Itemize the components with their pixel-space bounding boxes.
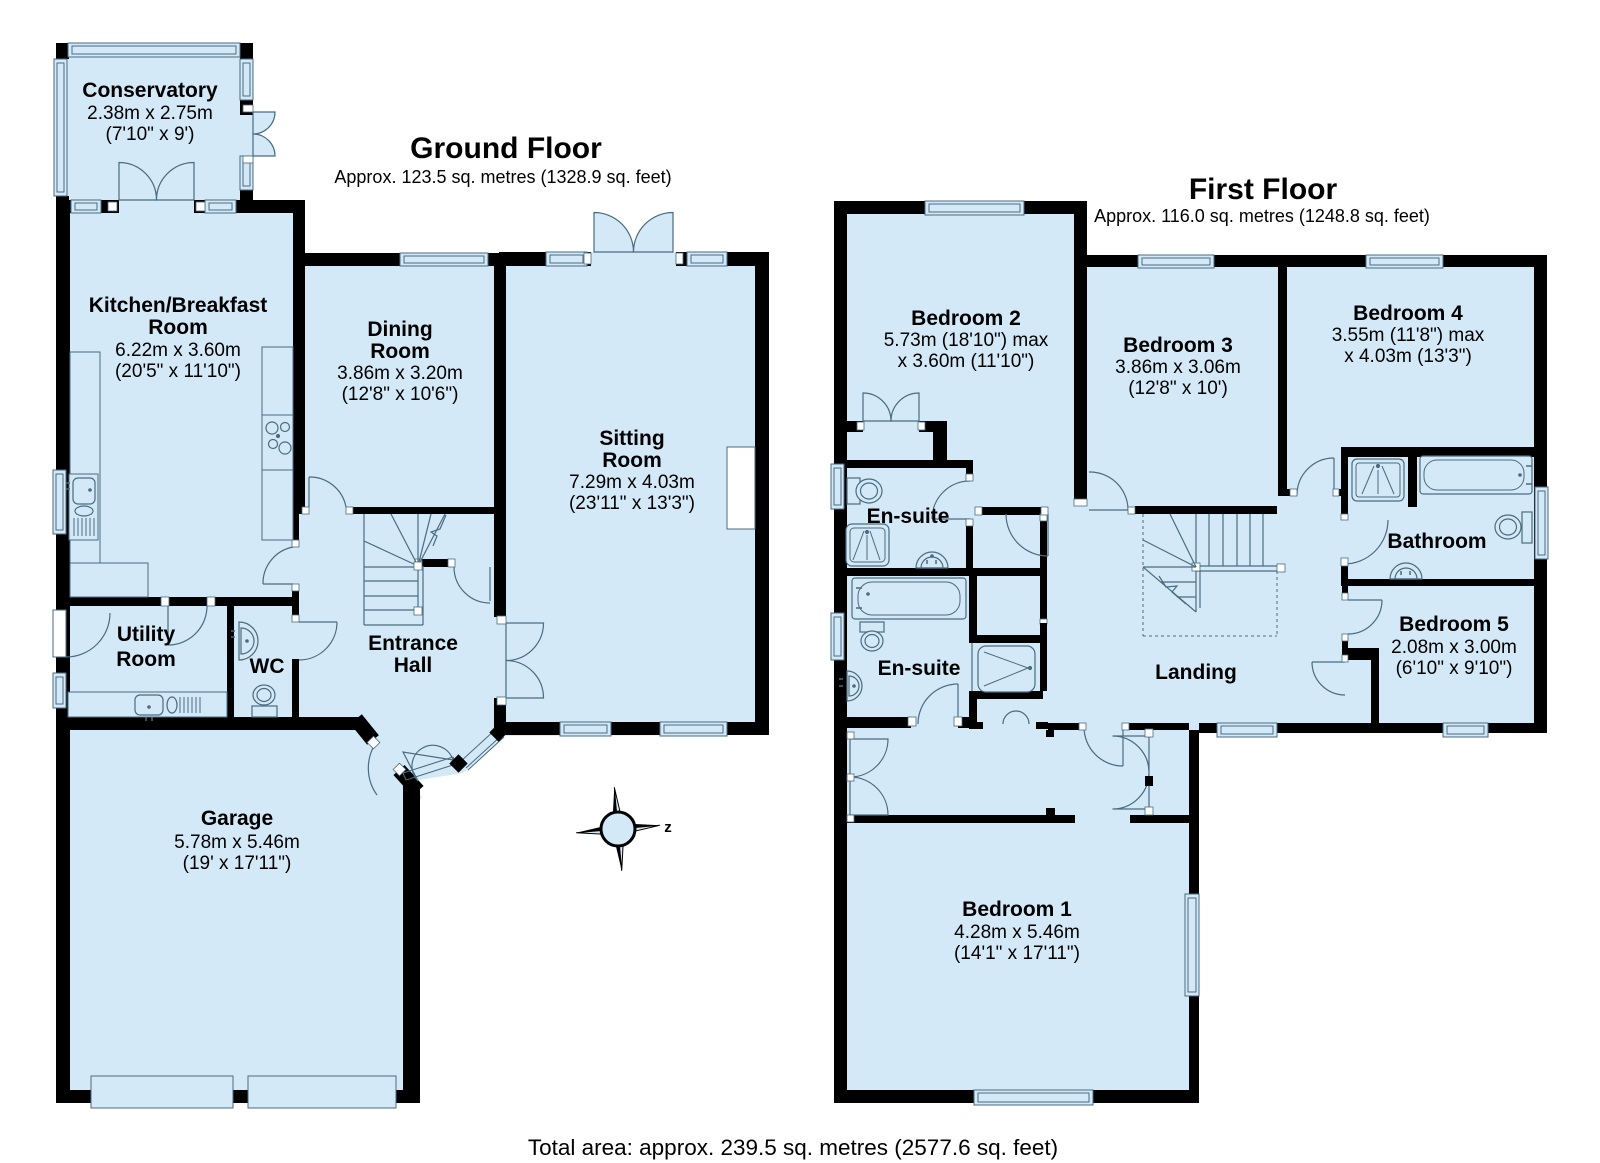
svg-text:(7'10" x 9'): (7'10" x 9') xyxy=(106,124,195,145)
svg-text:Entrance: Entrance xyxy=(368,632,458,655)
svg-text:3.86m x 3.20m: 3.86m x 3.20m xyxy=(337,363,463,384)
svg-text:Bathroom: Bathroom xyxy=(1387,530,1486,553)
svg-text:(23'11" x 13'3"): (23'11" x 13'3") xyxy=(569,493,695,514)
svg-text:(20'5" x 11'10"): (20'5" x 11'10") xyxy=(115,361,241,382)
svg-text:Kitchen/Breakfast: Kitchen/Breakfast xyxy=(89,294,268,317)
svg-text:Hall: Hall xyxy=(394,654,433,677)
svg-text:Bedroom 4: Bedroom 4 xyxy=(1353,302,1463,325)
svg-text:Sitting: Sitting xyxy=(599,427,664,450)
svg-text:5.78m x 5.46m: 5.78m x 5.46m xyxy=(174,832,300,853)
svg-text:3.55m (11'8") max: 3.55m (11'8") max xyxy=(1332,325,1485,346)
svg-text:(6'10" x 9'10"): (6'10" x 9'10") xyxy=(1396,658,1513,679)
svg-text:Bedroom 3: Bedroom 3 xyxy=(1123,334,1233,357)
svg-text:5.73m (18'10") max: 5.73m (18'10") max xyxy=(884,330,1049,351)
svg-text:3.86m x 3.06m: 3.86m x 3.06m xyxy=(1115,357,1241,378)
svg-text:(12'8" x 10'6"): (12'8" x 10'6") xyxy=(342,384,459,405)
svg-text:Room: Room xyxy=(602,449,662,472)
svg-text:Approx. 116.0 sq. metres (1248: Approx. 116.0 sq. metres (1248.8 sq. fee… xyxy=(1094,206,1430,226)
svg-text:2.38m x 2.75m: 2.38m x 2.75m xyxy=(87,103,213,124)
svg-text:Room: Room xyxy=(116,648,176,671)
svg-text:6.22m x 3.60m: 6.22m x 3.60m xyxy=(115,340,241,361)
svg-text:2.08m x 3.00m: 2.08m x 3.00m xyxy=(1391,637,1517,658)
svg-text:Bedroom 1: Bedroom 1 xyxy=(962,898,1072,921)
svg-text:7.29m x 4.03m: 7.29m x 4.03m xyxy=(569,472,695,493)
svg-text:Bedroom 2: Bedroom 2 xyxy=(911,307,1021,330)
svg-text:En-suite: En-suite xyxy=(878,657,961,680)
svg-text:(12'8" x 10'): (12'8" x 10') xyxy=(1128,378,1228,399)
svg-text:z: z xyxy=(664,819,672,836)
svg-text:Room: Room xyxy=(148,316,208,339)
svg-text:(14'1" x 17'11"): (14'1" x 17'11") xyxy=(954,943,1080,964)
svg-text:En-suite: En-suite xyxy=(867,505,950,528)
svg-text:Utility: Utility xyxy=(117,623,176,646)
svg-text:x 3.60m (11'10"): x 3.60m (11'10") xyxy=(898,351,1035,372)
svg-text:Conservatory: Conservatory xyxy=(82,79,218,102)
svg-text:Total area: approx. 239.5 sq.: Total area: approx. 239.5 sq. metres (25… xyxy=(528,1135,1058,1160)
svg-text:x 4.03m (13'3"): x 4.03m (13'3") xyxy=(1344,346,1472,367)
svg-text:Approx. 123.5 sq. metres (1328: Approx. 123.5 sq. metres (1328.9 sq. fee… xyxy=(334,167,671,187)
svg-text:First Floor: First Floor xyxy=(1189,173,1338,206)
svg-text:4.28m x 5.46m: 4.28m x 5.46m xyxy=(954,922,1080,943)
svg-text:Garage: Garage xyxy=(201,807,273,830)
svg-text:Landing: Landing xyxy=(1155,661,1237,684)
svg-text:(19' x 17'11"): (19' x 17'11") xyxy=(183,853,292,874)
svg-text:Ground Floor: Ground Floor xyxy=(410,132,602,165)
svg-text:Dining: Dining xyxy=(367,318,432,341)
svg-text:Bedroom 5: Bedroom 5 xyxy=(1399,613,1509,636)
svg-text:Room: Room xyxy=(370,340,430,363)
svg-text:WC: WC xyxy=(250,655,285,678)
